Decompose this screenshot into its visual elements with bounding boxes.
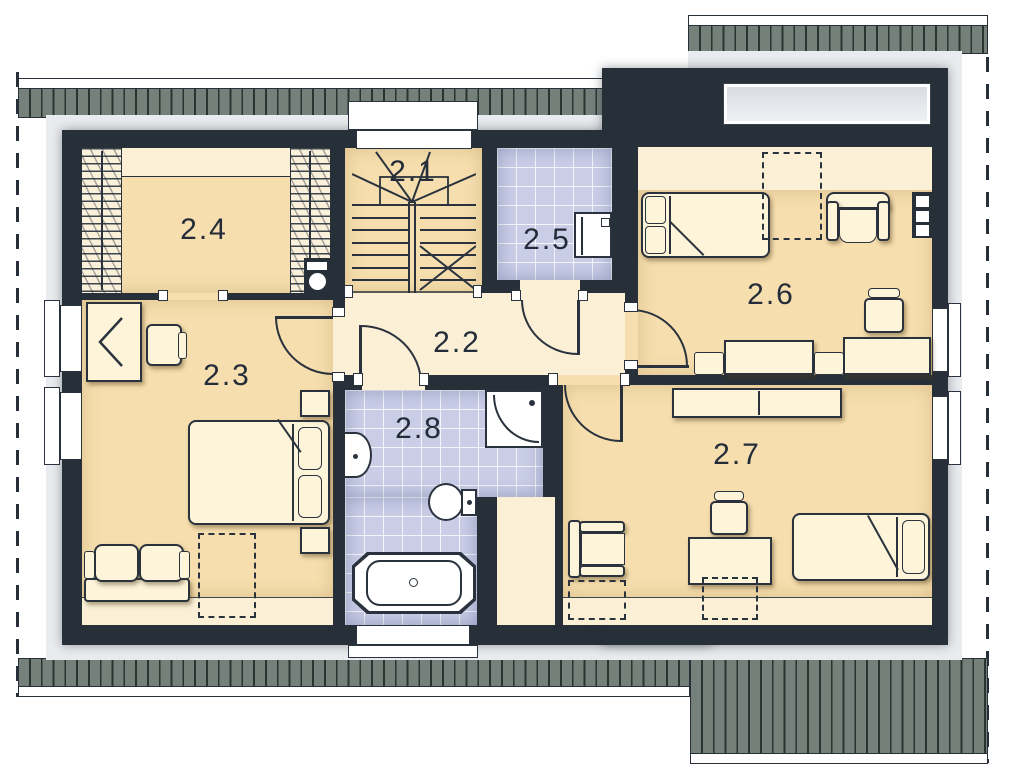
window <box>60 305 82 372</box>
room-label: 2.5 <box>523 223 571 257</box>
window <box>60 392 82 460</box>
skylight-outline <box>568 580 626 620</box>
eaves-edge <box>18 686 690 697</box>
door-jamb <box>419 373 429 386</box>
room-label: 2.1 <box>389 155 437 189</box>
door-jamb <box>332 372 345 382</box>
door-jamb <box>218 290 228 301</box>
sofa-cushion <box>139 544 184 582</box>
roof-eaves-strip-top-right <box>688 25 988 54</box>
room-label: 2.7 <box>713 438 761 472</box>
door-jamb <box>578 290 588 301</box>
bathtub <box>352 552 476 614</box>
opening-2-5-door <box>520 280 580 293</box>
door-jamb <box>473 285 482 298</box>
sofa-armrest <box>179 551 190 579</box>
door-jamb <box>344 285 353 298</box>
desk <box>86 302 142 382</box>
room-label: 2.3 <box>203 359 251 393</box>
wall-shelf <box>912 192 933 238</box>
opening-2-4-to-2-3 <box>167 293 220 300</box>
door-jamb <box>620 373 630 386</box>
skylight-outline <box>198 533 256 618</box>
shelf-unit-with-basket <box>304 258 331 293</box>
skylight-outline <box>702 577 758 620</box>
window <box>348 101 478 130</box>
window-sill <box>44 387 60 465</box>
armchair <box>826 192 890 245</box>
sofa-armrest <box>814 352 844 375</box>
pillow <box>902 520 925 574</box>
wardrobe-rail <box>101 151 103 290</box>
door-jamb <box>353 373 363 386</box>
roof-eaves-strip-bottom-right <box>690 658 988 754</box>
window-sill <box>44 300 60 377</box>
headboard-cushion <box>645 226 666 254</box>
toilet <box>428 483 464 521</box>
window <box>932 396 948 460</box>
room-label: 2.8 <box>395 412 443 446</box>
sofa-armrest <box>84 551 95 579</box>
room-2-4-shelf-zone <box>122 148 290 177</box>
door-jamb <box>158 290 168 301</box>
armchair <box>568 520 626 578</box>
room-label: 2.2 <box>433 326 481 360</box>
door-jamb <box>624 360 638 370</box>
sofa <box>724 340 814 375</box>
sofa-cushion <box>94 544 139 582</box>
room-label: 2.4 <box>180 213 228 247</box>
floor-plan-canvas: 2.1 2.2 2.3 2.4 2.5 2.6 2.7 2.8 <box>0 0 1010 780</box>
single-bed <box>641 192 770 258</box>
gable-dashed-line-left <box>16 72 19 697</box>
door-jamb <box>332 307 345 317</box>
window <box>356 625 470 645</box>
sofa-armrest <box>694 352 724 375</box>
pillow <box>298 427 322 470</box>
door-jamb <box>511 290 521 301</box>
window <box>932 308 948 372</box>
room-label: 2.6 <box>747 278 795 312</box>
headboard-cushion <box>645 196 666 224</box>
window-sill <box>948 303 961 377</box>
window-sill <box>348 645 478 658</box>
eaves-edge <box>690 753 988 764</box>
office-chair <box>706 491 752 537</box>
pillow <box>298 475 322 518</box>
opening-2-3-door <box>333 317 345 375</box>
roof-window <box>724 84 930 124</box>
toilet-tank <box>461 489 477 516</box>
room-2-7-niche <box>497 497 555 625</box>
single-bed <box>792 513 930 581</box>
skylight-outline <box>762 152 822 240</box>
sideboard <box>672 388 842 418</box>
door-jamb <box>548 373 558 386</box>
window <box>356 130 472 149</box>
washing-machine <box>574 212 612 258</box>
window-sill <box>948 391 961 465</box>
roof-eaves-strip-bottom-left <box>18 658 690 687</box>
office-chair <box>862 288 906 335</box>
desk <box>843 337 931 375</box>
office-chair-back <box>178 332 187 359</box>
shower <box>485 390 543 448</box>
nightstand <box>300 527 330 554</box>
door-jamb <box>624 302 638 312</box>
double-bed <box>188 420 330 525</box>
opening-2-7-door <box>557 375 623 385</box>
office-chair <box>146 324 182 366</box>
nightstand <box>300 390 330 417</box>
